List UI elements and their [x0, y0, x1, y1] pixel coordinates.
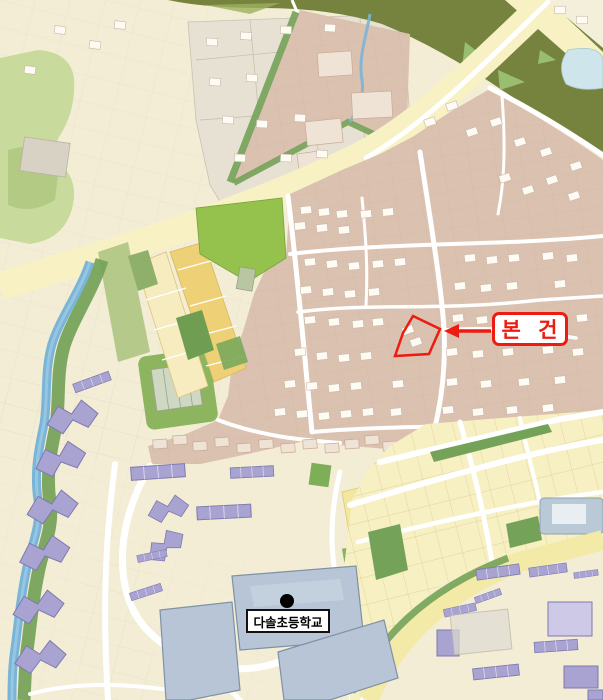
cadastral-map[interactable]: 본 건 다솔초등학교 — [0, 0, 603, 700]
map-artwork — [0, 0, 603, 700]
school-label-text: 다솔초등학교 — [253, 612, 322, 631]
pond-topright — [561, 48, 603, 89]
subject-callout: 본 건 — [492, 312, 568, 346]
school-marker-dot — [280, 594, 294, 608]
school-label: 다솔초등학교 — [246, 609, 330, 633]
subject-callout-label: 본 건 — [502, 314, 563, 344]
reservoir — [540, 498, 603, 534]
